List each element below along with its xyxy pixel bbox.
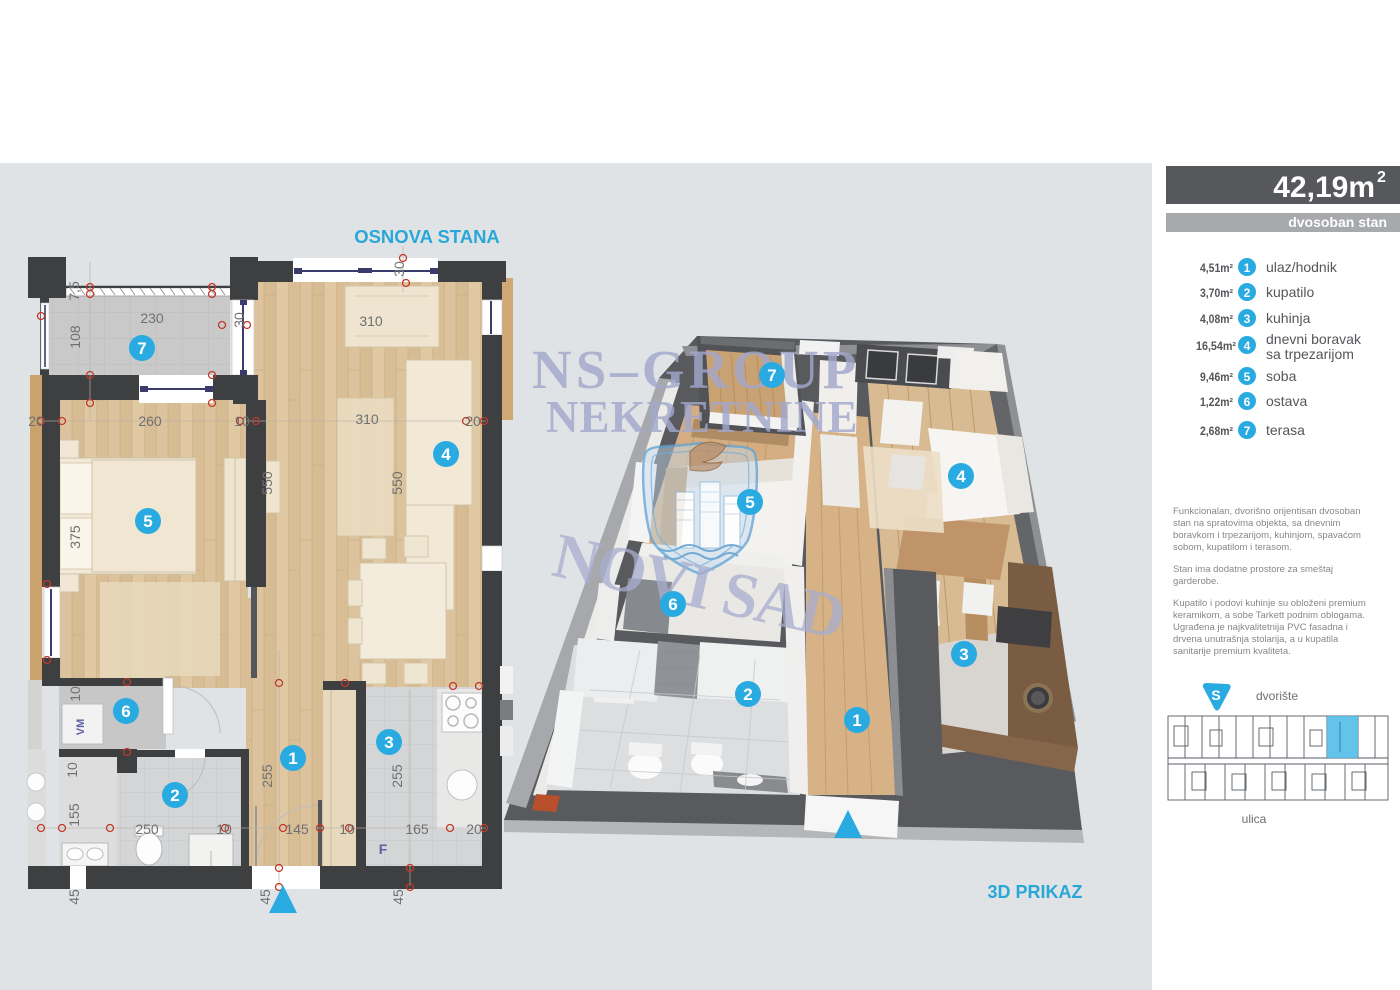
- svg-text:550: 550: [389, 471, 405, 495]
- svg-text:OSNOVA STANA: OSNOVA STANA: [354, 226, 500, 247]
- svg-text:7: 7: [137, 339, 146, 358]
- svg-text:ulica: ulica: [1242, 812, 1267, 826]
- svg-text:45: 45: [257, 889, 273, 905]
- svg-text:garderobe.: garderobe.: [1173, 576, 1219, 587]
- svg-text:42,19m: 42,19m: [1273, 171, 1375, 204]
- svg-text:1: 1: [288, 749, 297, 768]
- svg-text:dvorište: dvorište: [1256, 689, 1298, 703]
- svg-text:30: 30: [391, 261, 407, 277]
- svg-text:375: 375: [67, 525, 83, 549]
- svg-text:7,5: 7,5: [66, 281, 82, 301]
- svg-text:310: 310: [359, 313, 383, 329]
- svg-text:6: 6: [668, 595, 677, 614]
- svg-text:stan na spratovima objekta, sa: stan na spratovima objekta, sa dnevnim: [1173, 518, 1340, 529]
- svg-text:ulaz/hodnik: ulaz/hodnik: [1266, 259, 1338, 275]
- svg-text:terasa: terasa: [1266, 422, 1305, 438]
- svg-text:4: 4: [441, 445, 451, 464]
- svg-text:16,54m²: 16,54m²: [1196, 341, 1236, 353]
- svg-text:20: 20: [28, 413, 44, 429]
- svg-text:20: 20: [466, 821, 482, 837]
- svg-text:45: 45: [66, 889, 82, 905]
- svg-text:5: 5: [143, 512, 152, 531]
- svg-text:5: 5: [745, 493, 754, 512]
- svg-text:VM: VM: [75, 719, 87, 736]
- svg-text:310: 310: [355, 411, 379, 427]
- svg-text:3: 3: [1244, 312, 1251, 326]
- svg-text:keramikom, a sobe Tarkett podn: keramikom, a sobe Tarkett podnim oblogam…: [1173, 610, 1365, 621]
- svg-text:6: 6: [121, 702, 130, 721]
- svg-text:108: 108: [67, 325, 83, 349]
- svg-text:260: 260: [138, 413, 162, 429]
- svg-text:10: 10: [216, 821, 232, 837]
- svg-text:2: 2: [1377, 169, 1386, 186]
- svg-text:10: 10: [339, 821, 355, 837]
- svg-text:145: 145: [285, 821, 309, 837]
- svg-text:45: 45: [390, 889, 406, 905]
- svg-text:NEKRETNINE: NEKRETNINE: [546, 392, 859, 442]
- svg-text:550: 550: [259, 471, 275, 495]
- svg-text:Stan ima dodatne prostore za s: Stan ima dodatne prostore za smeštaj: [1173, 564, 1333, 575]
- svg-text:30: 30: [231, 312, 247, 328]
- svg-text:2: 2: [743, 685, 752, 704]
- svg-text:Kupatilo i podovi kuhinje su o: Kupatilo i podovi kuhinje su obloženi pr…: [1173, 598, 1366, 609]
- svg-text:10: 10: [67, 686, 83, 702]
- svg-text:dnevni boravak: dnevni boravak: [1266, 331, 1362, 347]
- svg-text:sanitarije premium kvaliteta.: sanitarije premium kvaliteta.: [1173, 646, 1291, 657]
- svg-text:4,51m²: 4,51m²: [1200, 263, 1233, 275]
- svg-text:2,68m²: 2,68m²: [1200, 426, 1233, 438]
- svg-text:9,46m²: 9,46m²: [1200, 372, 1233, 384]
- svg-text:3,70m²: 3,70m²: [1200, 288, 1233, 300]
- svg-text:2: 2: [170, 786, 179, 805]
- svg-text:4: 4: [956, 467, 966, 486]
- svg-text:NS–GROUP: NS–GROUP: [532, 339, 860, 400]
- svg-text:1: 1: [852, 711, 861, 730]
- svg-text:3: 3: [959, 645, 968, 664]
- svg-text:ostava: ostava: [1266, 393, 1307, 409]
- svg-text:dvosoban stan: dvosoban stan: [1288, 214, 1387, 230]
- svg-text:1,22m²: 1,22m²: [1200, 397, 1233, 409]
- svg-text:3: 3: [384, 733, 393, 752]
- svg-text:soba: soba: [1266, 368, 1297, 384]
- svg-text:S: S: [1211, 687, 1220, 703]
- svg-text:230: 230: [140, 310, 164, 326]
- svg-text:7: 7: [1244, 424, 1251, 438]
- svg-text:drvena unutrašnja stolarija, a: drvena unutrašnja stolarija, a u kupatil…: [1173, 634, 1339, 645]
- svg-text:Funkcionalan, dvorišno orijent: Funkcionalan, dvorišno orijentisan dvoso…: [1173, 506, 1360, 517]
- svg-text:sobom, kupatilom i terasom.: sobom, kupatilom i terasom.: [1173, 542, 1292, 553]
- svg-text:4: 4: [1244, 339, 1251, 353]
- svg-text:1: 1: [1244, 261, 1251, 275]
- svg-text:255: 255: [259, 764, 275, 788]
- svg-text:2: 2: [1244, 286, 1251, 300]
- svg-text:7: 7: [767, 366, 776, 385]
- svg-text:10: 10: [234, 413, 250, 429]
- svg-text:4,08m²: 4,08m²: [1200, 314, 1233, 326]
- svg-text:20: 20: [465, 413, 481, 429]
- svg-text:kupatilo: kupatilo: [1266, 284, 1314, 300]
- svg-text:6: 6: [1244, 395, 1251, 409]
- svg-text:F: F: [379, 841, 388, 857]
- svg-text:sa trpezarijom: sa trpezarijom: [1266, 346, 1354, 362]
- svg-text:250: 250: [135, 821, 159, 837]
- svg-text:255: 255: [389, 764, 405, 788]
- svg-text:boravkom i trpezarijom, kuhinj: boravkom i trpezarijom, kuhinjom, spavać…: [1173, 530, 1361, 541]
- svg-text:5: 5: [1244, 370, 1251, 384]
- svg-text:155: 155: [66, 803, 82, 827]
- svg-text:10: 10: [64, 762, 80, 778]
- svg-text:3D PRIKAZ: 3D PRIKAZ: [987, 882, 1082, 902]
- svg-text:165: 165: [405, 821, 429, 837]
- svg-text:kuhinja: kuhinja: [1266, 310, 1311, 326]
- svg-text:Ugrađena je najkvalitetnija PV: Ugrađena je najkvalitetnija PVC fasadna …: [1173, 622, 1348, 633]
